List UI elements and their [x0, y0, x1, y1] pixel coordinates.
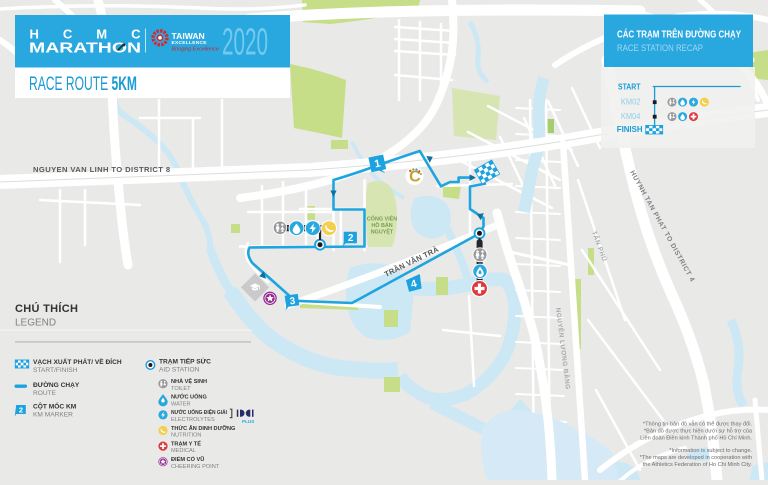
svg-text:HỒ BÁN: HỒ BÁN	[371, 222, 392, 229]
svg-text:KM02: KM02	[621, 97, 641, 107]
svg-text:Liên đoàn Điền kinh Thành phố: Liên đoàn Điền kinh Thành phố Hồ Chí Min…	[640, 436, 752, 442]
svg-text:THỨC ĂN DINH DƯỠNG: THỨC ĂN DINH DƯỠNG	[171, 425, 235, 432]
svg-text:ĐƯỜNG CHẠY: ĐƯỜNG CHẠY	[33, 380, 80, 389]
svg-text:KM04: KM04	[621, 111, 641, 121]
svg-text:Bringing Excellence: Bringing Excellence	[172, 47, 219, 53]
svg-text:ĐIỂM CỔ VŨ: ĐIỂM CỔ VŨ	[171, 456, 204, 463]
svg-text:CHÚ THÍCH: CHÚ THÍCH	[15, 302, 78, 315]
svg-text:CÁC TRẠM TRÊN ĐƯỜNG CHẠY: CÁC TRẠM TRÊN ĐƯỜNG CHẠY	[617, 28, 741, 41]
svg-text:AID STATION: AID STATION	[159, 367, 200, 374]
svg-text:*Bản đồ được thực hiện dưới sự: *Bản đồ được thực hiện dưới sự hỗ trợ củ…	[644, 428, 753, 435]
svg-text:2020: 2020	[222, 22, 268, 64]
svg-text:ROUTE: ROUTE	[33, 390, 57, 397]
svg-text:PLUS: PLUS	[242, 419, 254, 424]
svg-text:EXCELLENCE: EXCELLENCE	[172, 40, 208, 46]
svg-text:START/FINISH: START/FINISH	[33, 367, 78, 374]
svg-text:TRẠM Y TẾ: TRẠM Y TẾ	[171, 440, 201, 447]
svg-text:TAIWAN: TAIWAN	[172, 31, 205, 41]
svg-text:NGUYỆT: NGUYỆT	[371, 228, 394, 236]
svg-text:LEGEND: LEGEND	[15, 318, 56, 329]
svg-text:KM MARKER: KM MARKER	[33, 412, 73, 419]
svg-text:*Information is subject to cha: *Information is subject to change.	[669, 448, 752, 454]
svg-text:NƯỚC UỐNG: NƯỚC UỐNG	[171, 393, 207, 401]
svg-text:NƯỚC UỐNG ĐIỆN GIẢI: NƯỚC UỐNG ĐIỆN GIẢI	[171, 408, 227, 416]
svg-text:*Thông tin bản đồ vẫn có thể đ: *Thông tin bản đồ vẫn có thể được thay đ…	[643, 421, 753, 428]
svg-text:NUTRITION: NUTRITION	[171, 433, 201, 439]
svg-text:WATER: WATER	[171, 401, 191, 407]
svg-text:the Athletics Federation of Ho: the Athletics Federation of Ho Chi Minh …	[643, 462, 753, 468]
svg-text:NGUYEN VAN LINH TO DISTRICT 8: NGUYEN VAN LINH TO DISTRICT 8	[33, 165, 170, 174]
svg-text:HCMC: HCMC	[30, 27, 165, 42]
svg-text:ELECTROLYTES: ELECTROLYTES	[171, 417, 215, 423]
svg-text:TOILET: TOILET	[171, 386, 191, 392]
svg-text:FINISH: FINISH	[617, 124, 643, 134]
svg-text:NHÀ VỆ SINH: NHÀ VỆ SINH	[171, 377, 207, 385]
svg-text:MEDICAL: MEDICAL	[171, 448, 196, 454]
svg-text:RACE STATION RECAP: RACE STATION RECAP	[617, 43, 703, 54]
svg-text:CHEERING POINT: CHEERING POINT	[171, 464, 220, 470]
svg-text:MARATHON: MARATHON	[29, 41, 141, 57]
svg-text:2: 2	[348, 233, 354, 244]
svg-text:2: 2	[19, 405, 23, 414]
svg-text:*The maps are developed in coo: *The maps are developed in cooperation w…	[640, 455, 752, 461]
svg-text:RACE ROUTE 5KM: RACE ROUTE 5KM	[29, 73, 137, 95]
svg-text:CÔNG VIÊN: CÔNG VIÊN	[367, 215, 397, 223]
svg-text:START: START	[618, 82, 641, 92]
